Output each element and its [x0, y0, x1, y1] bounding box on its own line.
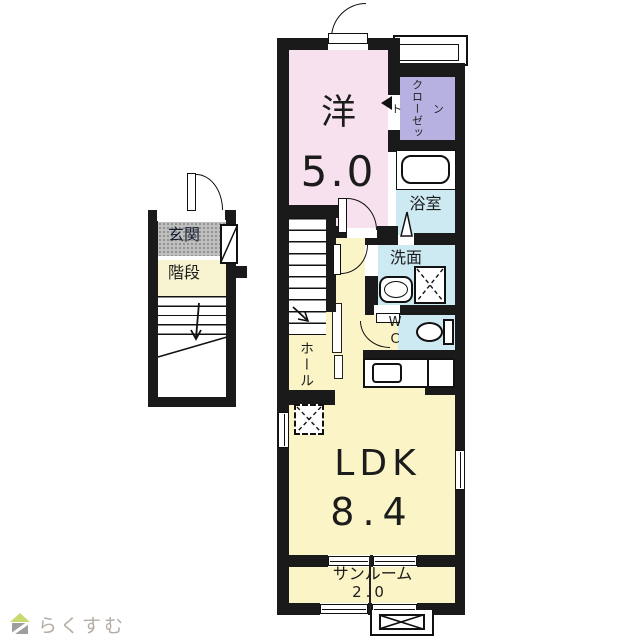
window	[278, 412, 289, 448]
bathtub-surround	[396, 150, 456, 190]
logo: らくすむ	[8, 610, 158, 638]
stairwell-left	[158, 296, 226, 343]
walkin-closet-label: ウォークイン クローゼット	[398, 77, 455, 140]
washbasin	[379, 276, 413, 303]
toilet-bowl	[416, 322, 443, 342]
wall	[277, 38, 289, 615]
stair-railing	[334, 355, 343, 379]
ldk-label: LDK	[300, 440, 455, 488]
wall-nub	[234, 266, 247, 278]
outdoor-unit-enclosure	[370, 610, 434, 636]
wall	[455, 490, 465, 615]
window	[320, 604, 368, 614]
bathroom-label: 浴室	[396, 192, 455, 216]
house-icon	[8, 612, 32, 636]
door-swing	[196, 174, 223, 210]
ldk-size: 8.4	[295, 488, 450, 538]
stairwell-main	[289, 218, 326, 335]
bathtub	[401, 155, 450, 184]
stairs-label: 階段	[158, 262, 210, 284]
washbasin-bowl	[384, 281, 408, 298]
wall	[400, 305, 465, 315]
door-leaf	[187, 173, 196, 211]
kitchen-divider	[427, 360, 429, 386]
door-leaf	[328, 33, 368, 44]
refrigerator-space	[294, 404, 324, 435]
western-room-size: 5.0	[289, 144, 388, 200]
wall	[365, 238, 378, 245]
toilet-tank	[443, 319, 454, 345]
shoe-cabinet	[220, 224, 238, 264]
entrance-block	[0, 0, 260, 640]
wc-label: W C	[386, 313, 404, 351]
kitchen-counter	[363, 358, 455, 388]
washing-machine-pan	[414, 266, 446, 304]
wall	[277, 205, 340, 218]
wall	[377, 226, 398, 238]
wall	[363, 350, 465, 358]
logo-text: らくすむ	[38, 611, 126, 638]
outdoor-unit	[379, 614, 425, 630]
floor-plan-page: { "plan": { "type": "japanese-apartment-…	[0, 0, 640, 640]
door-leaf	[338, 198, 347, 233]
wall	[398, 63, 465, 77]
western-room-label: 洋	[289, 88, 388, 138]
washroom-label: 洗面	[378, 246, 434, 270]
balcony-inner-line	[398, 44, 459, 61]
doorway	[398, 235, 414, 245]
wall	[277, 603, 320, 615]
wall	[365, 305, 374, 315]
wall	[414, 233, 465, 245]
window	[455, 450, 465, 490]
entrance-label: 玄関	[158, 224, 210, 246]
hall-label: ホール	[293, 337, 319, 393]
sunroom-label: サンルーム	[300, 564, 445, 584]
kitchen-sink	[372, 363, 402, 383]
door-leaf	[333, 244, 341, 275]
sunroom-size: 2.0	[300, 584, 440, 602]
balcony-outline	[393, 35, 468, 66]
